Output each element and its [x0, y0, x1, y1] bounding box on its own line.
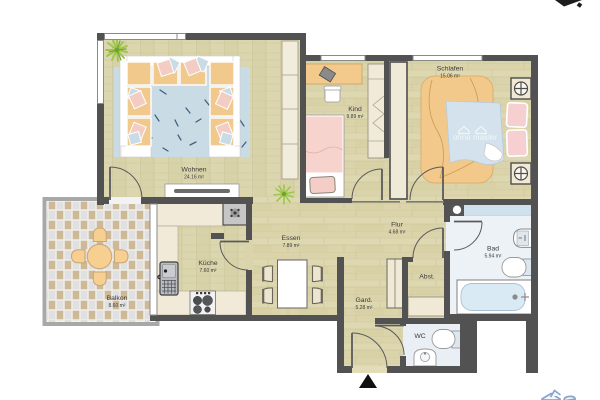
svg-text:Balkon: Balkon [107, 295, 128, 302]
svg-text:Gard.: Gard. [356, 297, 373, 304]
svg-text:7.60 m²: 7.60 m² [200, 268, 217, 274]
svg-text:Schlafen: Schlafen [437, 66, 464, 73]
svg-text:Abst.: Abst. [419, 274, 435, 281]
svg-text:5.94 m²: 5.94 m² [485, 254, 502, 260]
svg-text:4.68 m²: 4.68 m² [389, 230, 406, 236]
svg-text:24.16 m²: 24.16 m² [184, 175, 204, 181]
svg-text:Küche: Küche [198, 260, 217, 267]
svg-text:15.06 m²: 15.06 m² [440, 74, 460, 80]
svg-text:Kind: Kind [348, 106, 362, 113]
svg-text:WC: WC [414, 333, 425, 340]
svg-text:Flur: Flur [391, 222, 403, 229]
svg-text:Essen: Essen [282, 235, 301, 242]
svg-text:Bad: Bad [487, 246, 499, 253]
svg-text:8.60 m²: 8.60 m² [109, 303, 126, 309]
svg-text:7.89 m²: 7.89 m² [283, 243, 300, 249]
svg-text:ohne makler: ohne makler [453, 133, 497, 142]
svg-text:9.89 m²: 9.89 m² [347, 114, 364, 120]
svg-text:Wohnen: Wohnen [181, 167, 206, 174]
svg-text:5.28 m²: 5.28 m² [356, 305, 373, 311]
